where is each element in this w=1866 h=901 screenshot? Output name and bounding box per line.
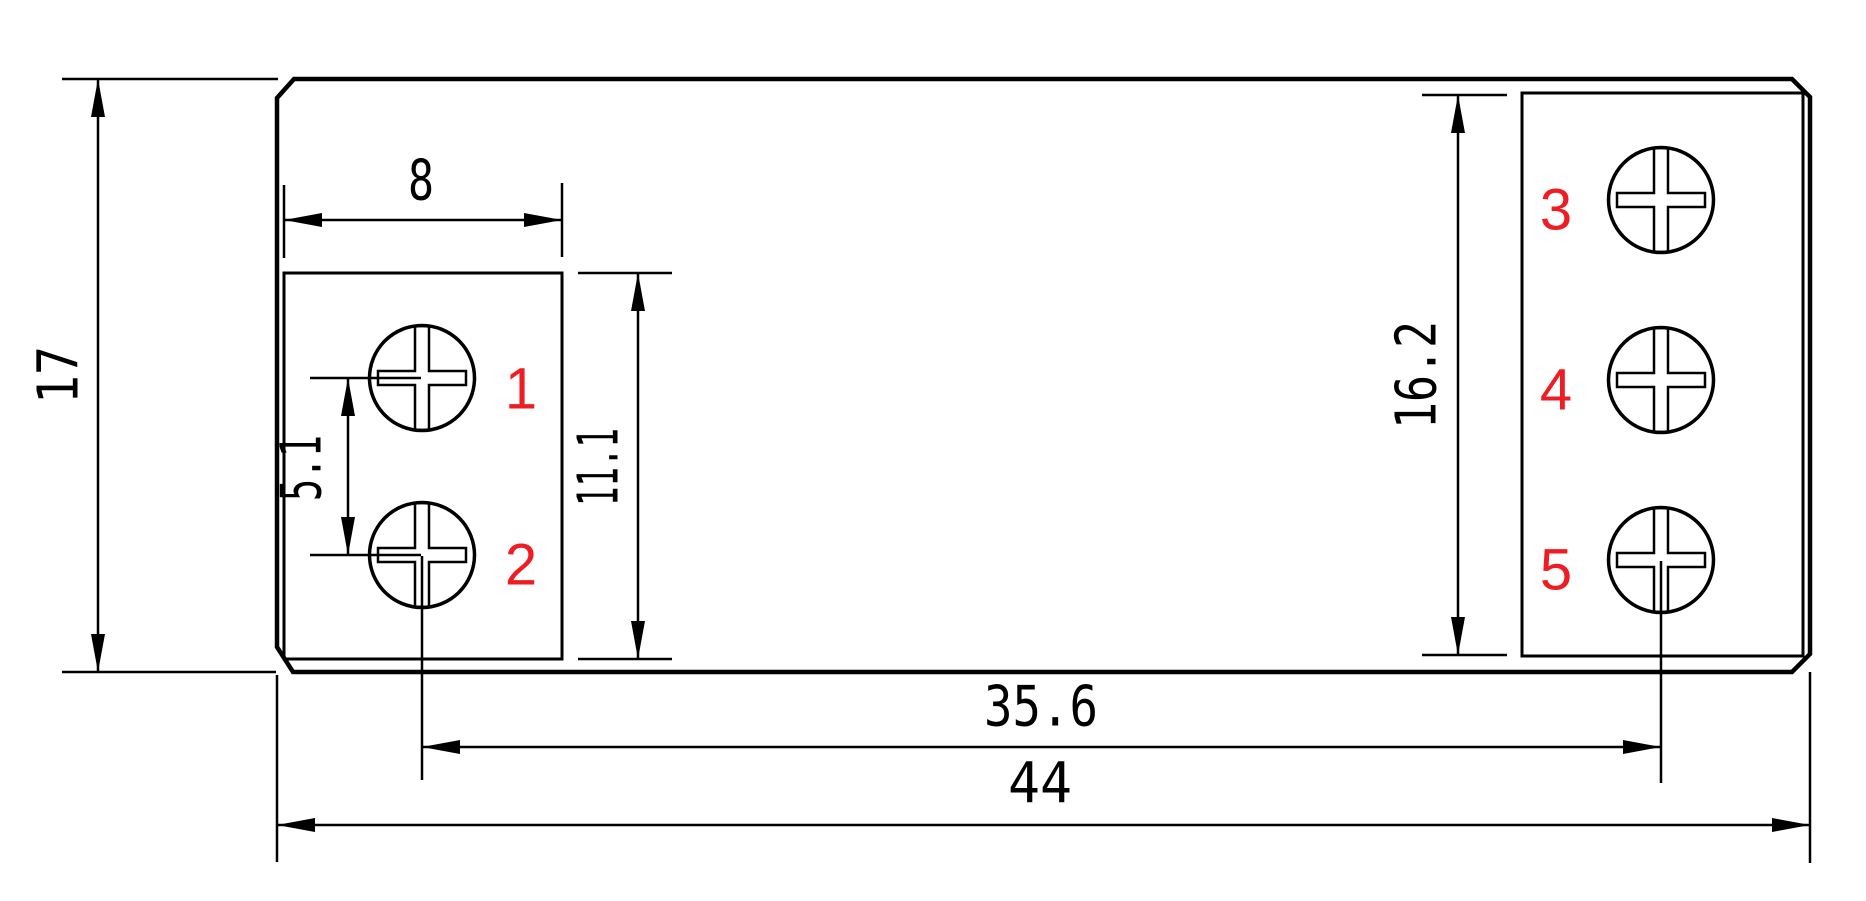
drawing-canvas: 1785.111.116.235.64412345 (0, 0, 1866, 901)
dimension-arrowhead-down (341, 517, 355, 555)
dimension-arrowhead-down (91, 634, 105, 672)
dimension-text-16.2: 16.2 (1385, 321, 1450, 429)
dimension-17: 17 (27, 79, 279, 672)
dimension-text-8: 8 (408, 149, 434, 214)
dimension-arrowhead-down (631, 621, 645, 659)
dimension-arrowhead-right (1772, 818, 1810, 832)
dimension-text-35.6: 35.6 (984, 675, 1098, 740)
phillips-cross-icon (1617, 148, 1705, 252)
technical-drawing-svg: 1785.111.116.235.64412345 (0, 0, 1866, 901)
dimension-arrowhead-down (1451, 617, 1465, 655)
dimension-16.2: 16.2 (1385, 95, 1508, 655)
dimension-arrowhead-right (1623, 740, 1661, 754)
screw-number-label-3: 3 (1540, 178, 1572, 243)
phillips-cross-icon (1617, 328, 1705, 432)
dimension-arrowhead-up (631, 273, 645, 311)
screw-circle (1609, 148, 1714, 253)
screw-3 (1609, 148, 1714, 253)
screw-number-label-1: 1 (505, 357, 537, 422)
dimension-text-17: 17 (27, 346, 92, 404)
dimension-arrowhead-right (524, 213, 562, 227)
dimension-11.1: 11.1 (567, 273, 673, 659)
dimension-arrowhead-left (422, 740, 460, 754)
dimension-text-44: 44 (1008, 752, 1072, 817)
dimension-arrowhead-left (284, 213, 322, 227)
screw-number-label-5: 5 (1540, 538, 1572, 603)
screw-number-label-4: 4 (1540, 358, 1572, 423)
dimension-5.1: 5.1 (270, 378, 422, 555)
screw-number-label-2: 2 (505, 533, 537, 598)
dimension-arrowhead-left (277, 818, 315, 832)
dimension-text-5.1: 5.1 (270, 435, 335, 501)
screw-4 (1609, 328, 1714, 433)
dimension-arrowhead-up (91, 79, 105, 117)
dimension-arrowhead-up (1451, 95, 1465, 133)
dimension-35.6: 35.6 (422, 675, 1661, 755)
dimension-text-11.1: 11.1 (567, 428, 632, 506)
dimension-8: 8 (284, 149, 562, 259)
dimension-arrowhead-up (341, 378, 355, 416)
screw-circle (1609, 328, 1714, 433)
